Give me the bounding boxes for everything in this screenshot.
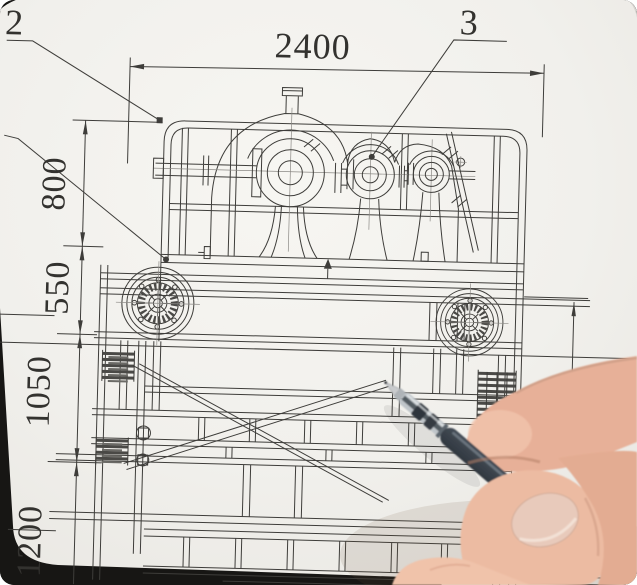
callout-2-label: 2	[5, 2, 25, 42]
dimension-1050-label: 1050	[20, 355, 59, 428]
callout-3-label: 3	[459, 2, 479, 42]
dimension-2400-label: 2400	[274, 25, 351, 67]
dimension-550-label: 550	[39, 260, 77, 315]
photo-scene: 2 3 2400 800 550	[0, 0, 637, 585]
photo-frame: 2 3 2400 800 550	[0, 0, 637, 585]
dimension-800-label: 800	[35, 156, 73, 211]
dimension-1200-label: 1200	[11, 505, 50, 578]
spring-stack-left-upper	[102, 350, 135, 383]
